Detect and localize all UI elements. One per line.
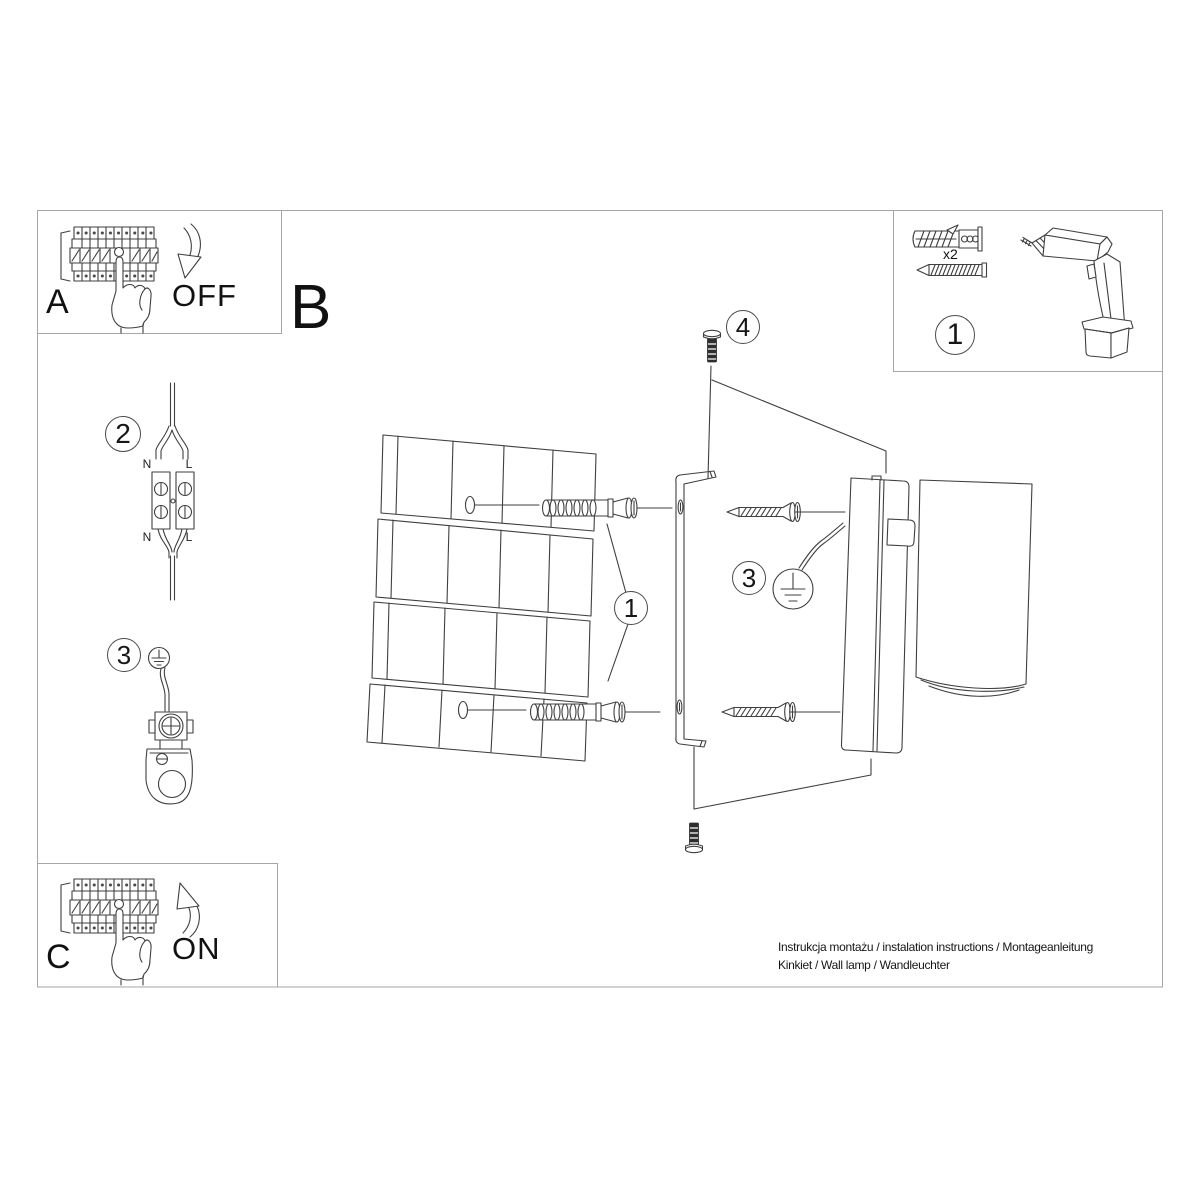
panel-a-label: A xyxy=(46,285,69,319)
earth-ground-icon xyxy=(149,648,170,669)
wire-label-n-top: N xyxy=(140,458,154,470)
step-badge-1-main: 1 xyxy=(614,591,648,625)
wire-label-n-bottom: N xyxy=(140,531,154,543)
wall-plug-icon xyxy=(531,702,661,722)
wall-plug-icon xyxy=(543,498,673,518)
wire-label-l-bottom: L xyxy=(182,531,196,543)
screw-icon xyxy=(722,703,840,722)
instruction-sheet: A OFF B C ON x2 1 2 3 1 3 4 N L N L Inst… xyxy=(0,0,1200,1200)
ground-lug-icon xyxy=(146,668,193,804)
step-badge-tools-1: 1 xyxy=(935,315,975,355)
quantity-label: x2 xyxy=(943,247,958,261)
wall-lamp-body-icon xyxy=(841,476,1032,753)
mounting-bracket-icon xyxy=(676,471,716,747)
circuit-breaker-icon xyxy=(61,879,158,985)
footer-line-1: Instrukcja montażu / instalation instruc… xyxy=(778,938,1093,956)
cable-split-icon xyxy=(156,383,188,459)
panel-c-label: C xyxy=(46,940,71,974)
screw-icon xyxy=(686,747,872,853)
footer-text: Instrukcja montażu / instalation instruc… xyxy=(778,938,1093,974)
line-art xyxy=(0,0,1200,1200)
panel-c-on-label: ON xyxy=(172,933,221,964)
curved-arrow-down-icon xyxy=(178,224,201,278)
drill-icon xyxy=(1021,228,1133,358)
step-badge-4: 4 xyxy=(726,310,760,344)
screw-icon xyxy=(727,503,845,522)
curved-arrow-up-icon xyxy=(177,883,199,937)
panel-b-label: B xyxy=(290,277,331,339)
panel-a-off-label: OFF xyxy=(172,280,237,311)
terminal-block-icon xyxy=(152,472,194,529)
step-badge-3-main: 3 xyxy=(732,561,766,595)
earth-ground-icon xyxy=(773,523,845,609)
screw-icon xyxy=(917,263,987,277)
wire-label-l-top: L xyxy=(182,458,196,470)
step-badge-2: 2 xyxy=(105,416,141,452)
circuit-breaker-icon xyxy=(61,227,158,333)
screw-icon xyxy=(704,330,887,478)
step-badge-3-side: 3 xyxy=(107,638,141,672)
footer-line-2: Kinkiet / Wall lamp / Wandleuchter xyxy=(778,956,1093,974)
